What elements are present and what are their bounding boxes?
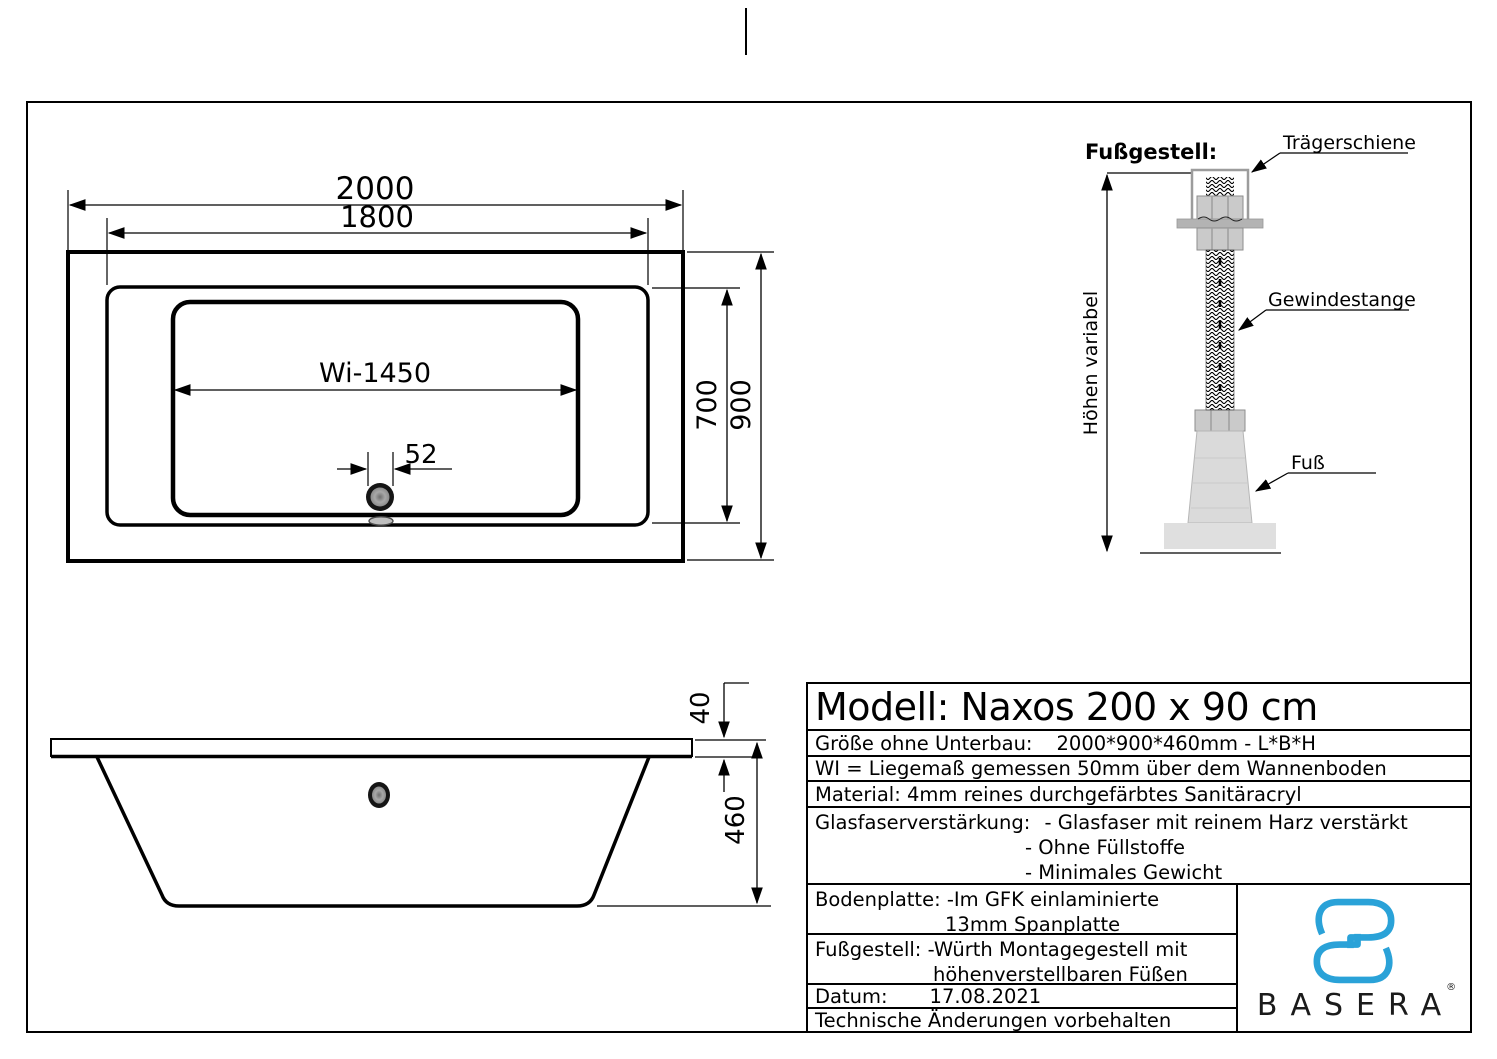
base-plate-line-1: Bodenplatte: -Im GFK einlaminierte — [815, 887, 1236, 912]
foot-detail-title: Fußgestell: — [1085, 140, 1217, 164]
rail-leader — [1252, 153, 1408, 172]
fiberglass-item-1: - Glasfaser mit reinem Harz verstärkt — [1045, 811, 1408, 834]
tub-body-side-view — [97, 757, 649, 906]
foot-base-plate — [1164, 523, 1276, 549]
dim-460-label: 460 — [721, 795, 751, 845]
dim-40-label: 40 — [686, 691, 716, 724]
size-value: 2000*900*460mm - L*B*H — [1057, 732, 1316, 755]
tub-side-view: 40 460 — [51, 683, 771, 906]
fiberglass-item-2: - Ohne Füllstoffe — [815, 835, 1470, 860]
date-row: Datum: 17.08.2021 — [808, 985, 1236, 1009]
brand-logo-cell: BASERA® — [1238, 885, 1470, 1031]
brand-wordmark: BASERA® — [1244, 991, 1464, 1021]
dim-52-label: 52 — [404, 440, 437, 470]
height-variable-label: Höhen variabel — [1080, 291, 1102, 435]
drain-side-view-center — [372, 787, 386, 804]
tub-top-view: 2000 1800 Wi-1450 52 — [68, 171, 774, 561]
technical-drawing-sheet: 2000 1800 Wi-1450 52 — [0, 0, 1497, 1059]
rod-top-thread — [1206, 177, 1234, 196]
rod-leader — [1239, 310, 1409, 330]
footer-note-row: Technische Änderungen vorbehalten — [808, 1009, 1236, 1031]
base-plate-line-2: 13mm Spanplatte — [815, 912, 1236, 935]
rail-label: Trägerschiene — [1282, 132, 1416, 154]
drain-top-view-center — [371, 488, 390, 507]
basera-logo-icon — [1306, 895, 1402, 987]
tub-rim-side-view — [51, 739, 692, 756]
dim-700-label: 700 — [692, 379, 723, 431]
wi-note-row: WI = Liegemaß gemessen 50mm über dem Wan… — [808, 757, 1470, 782]
base-plate-row: Bodenplatte: -Im GFK einlaminierte 13mm … — [808, 885, 1236, 935]
dim-900-label: 900 — [726, 379, 757, 431]
date-label: Datum: — [815, 985, 888, 1008]
material-row: Material: 4mm reines durchgefärbtes Sani… — [808, 782, 1470, 808]
date-value: 17.08.2021 — [930, 985, 1042, 1008]
foot-leader — [1256, 473, 1376, 491]
rod-label: Gewindestange — [1268, 289, 1416, 311]
overflow-top-view — [369, 517, 393, 525]
foot-label: Fuß — [1291, 452, 1325, 474]
fiberglass-item-3: - Minimales Gewicht — [815, 860, 1470, 885]
model-title: Modell: Naxos 200 x 90 cm — [808, 684, 1470, 731]
foot-cone — [1188, 431, 1252, 523]
foot-frame-line-1: Fußgestell: -Würth Montagegestell mit — [815, 937, 1236, 962]
spec-table: Modell: Naxos 200 x 90 cm Größe ohne Unt… — [806, 682, 1472, 1033]
table-bottom-left-column: Bodenplatte: -Im GFK einlaminierte 13mm … — [808, 885, 1238, 1031]
tub-basin-edge-top-view — [173, 302, 578, 515]
fiberglass-label: Glasfaserverstärkung: — [815, 811, 1030, 834]
registered-trademark: ® — [1446, 982, 1456, 993]
brand-name: BASERA — [1257, 988, 1454, 1023]
foot-frame-line-2: höhenverstellbaren Füßen — [815, 962, 1236, 985]
size-row: Größe ohne Unterbau: 2000*900*460mm - L*… — [808, 731, 1470, 757]
dim-1800-label: 1800 — [340, 200, 414, 234]
foot-frame-row: Fußgestell: -Würth Montagegestell mit hö… — [808, 935, 1236, 985]
dim-wi1450-label: Wi-1450 — [319, 358, 431, 389]
foot-frame-detail: Fußgestell: Höhen variabel — [1080, 132, 1416, 553]
fiberglass-row: Glasfaserverstärkung: - Glasfaser mit re… — [808, 808, 1470, 885]
size-label: Größe ohne Unterbau: — [815, 732, 1033, 755]
table-bottom-section: Bodenplatte: -Im GFK einlaminierte 13mm … — [808, 885, 1470, 1031]
